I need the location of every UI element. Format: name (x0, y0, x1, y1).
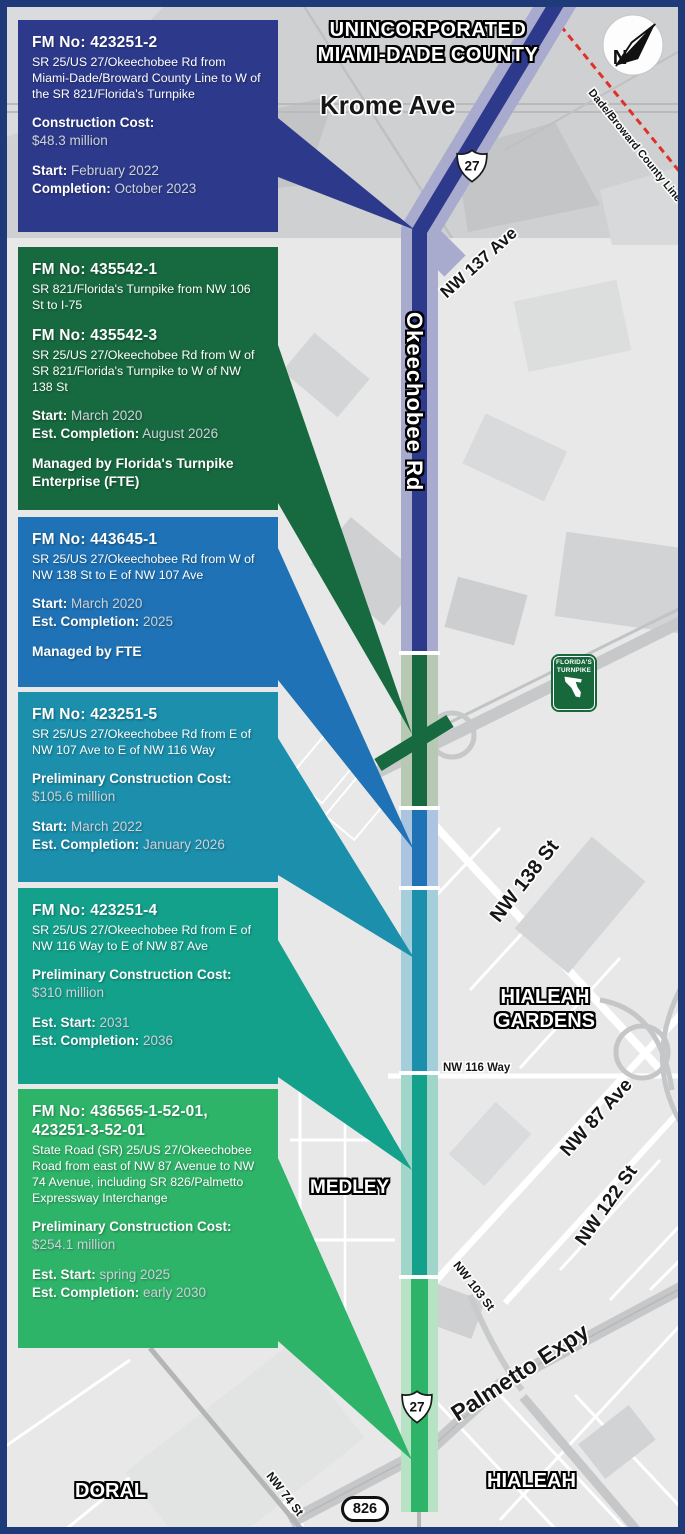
svg-text:27: 27 (409, 1400, 424, 1415)
segment-423251-4 (412, 1075, 427, 1275)
start-label: Start: (32, 163, 67, 178)
project-map: UNINCORPORATED MIAMI-DADE COUNTY Krome A… (0, 0, 685, 1534)
fm-number-2: FM No: 435542-3 (32, 326, 264, 345)
florida-silhouette-icon (561, 674, 587, 700)
start-value: spring 2025 (100, 1267, 171, 1282)
start-value: March 2020 (71, 408, 142, 423)
cost-label: Preliminary Construction Cost: (32, 770, 264, 788)
project-description: State Road (SR) 25/US 27/Okeechobee Road… (32, 1142, 264, 1206)
start-label: Start: (32, 408, 67, 423)
start-value: February 2022 (71, 163, 159, 178)
project-description: SR 25/US 27/Okeechobee Rd from E of NW 1… (32, 922, 264, 954)
us-27-shield-north: 27 (455, 149, 489, 183)
project-description-2: SR 25/US 27/Okeechobee Rd from W of SR 8… (32, 347, 264, 395)
street-label-krome-ave: Krome Ave (320, 90, 455, 121)
completion-value: October 2023 (115, 181, 197, 196)
project-description: SR 25/US 27/Okeechobee Rd from W of NW 1… (32, 551, 264, 583)
region-label-hialeah-gardens: HIALEAH GARDENS (460, 985, 630, 1033)
fm-number: FM No: 443645-1 (32, 530, 264, 549)
project-card-423251-5: FM No: 423251-5 SR 25/US 27/Okeechobee R… (18, 692, 278, 882)
completion-label: Completion: (32, 181, 111, 196)
start-value: March 2022 (71, 819, 142, 834)
completion-value: 2025 (143, 614, 173, 629)
us-27-shield-south: 27 (400, 1390, 434, 1424)
project-description: SR 25/US 27/Okeechobee Rd from Miami-Dad… (32, 54, 264, 102)
start-label: Start: (32, 596, 67, 611)
region-label-unincorporated: UNINCORPORATED MIAMI-DADE COUNTY (266, 18, 590, 68)
cost-label: Construction Cost: (32, 114, 264, 132)
svg-text:N: N (613, 46, 628, 69)
svg-text:27: 27 (464, 159, 479, 174)
completion-label: Est. Completion: (32, 614, 139, 629)
completion-label: Est. Completion: (32, 1285, 139, 1300)
fm-number: FM No: 423251-4 (32, 901, 264, 920)
project-card-423251-2: FM No: 423251-2 SR 25/US 27/Okeechobee R… (18, 20, 278, 232)
cost-value: $310 million (32, 984, 264, 1002)
street-label-nw-116-way: NW 116 Way (443, 1062, 510, 1074)
region-label-medley: MEDLEY (310, 1177, 389, 1199)
cost-value: $105.6 million (32, 788, 264, 806)
project-card-423251-4: FM No: 423251-4 SR 25/US 27/Okeechobee R… (18, 888, 278, 1084)
segment-443645-1 (412, 810, 427, 886)
completion-label: Est. Completion: (32, 1033, 139, 1048)
completion-value: 2036 (143, 1033, 173, 1048)
north-arrow: N (601, 13, 665, 77)
completion-label: Est. Completion: (32, 426, 139, 441)
project-card-443645-1: FM No: 443645-1 SR 25/US 27/Okeechobee R… (18, 517, 278, 687)
cost-label: Preliminary Construction Cost: (32, 1218, 264, 1236)
start-label: Start: (32, 819, 67, 834)
project-card-435542: FM No: 435542-1 SR 821/Florida's Turnpik… (18, 247, 278, 510)
completion-label: Est. Completion: (32, 837, 139, 852)
start-value: March 2020 (71, 596, 142, 611)
managed-by-note: Managed by Florida's Turnpike Enterprise… (32, 455, 264, 491)
completion-value: January 2026 (143, 837, 225, 852)
project-description: SR 25/US 27/Okeechobee Rd from E of NW 1… (32, 726, 264, 758)
project-card-436565: FM No: 436565-1-52-01, 423251-3-52-01 St… (18, 1089, 278, 1348)
segment-423251-5 (412, 890, 427, 1071)
start-label: Est. Start: (32, 1267, 96, 1282)
completion-value: early 2030 (143, 1285, 206, 1300)
region-label-hialeah: HIALEAH (487, 1470, 576, 1493)
start-value: 2031 (100, 1015, 130, 1030)
sr-826-shield: 826 (341, 1496, 389, 1522)
cost-value: $254.1 million (32, 1236, 264, 1254)
project-description: SR 821/Florida's Turnpike from NW 106 St… (32, 281, 264, 313)
cost-value: $48.3 million (32, 132, 264, 150)
completion-value: August 2026 (142, 426, 218, 441)
fm-number: FM No: 423251-5 (32, 705, 264, 724)
managed-by-note: Managed by FTE (32, 643, 264, 661)
street-label-okeechobee-rd: Okeechobee Rd (401, 312, 427, 491)
florida-turnpike-shield: FLORIDA'S TURNPIKE (551, 654, 597, 712)
start-label: Est. Start: (32, 1015, 96, 1030)
fm-number: FM No: 436565-1-52-01, 423251-3-52-01 (32, 1102, 264, 1140)
cost-label: Preliminary Construction Cost: (32, 966, 264, 984)
fm-number: FM No: 423251-2 (32, 33, 264, 52)
fm-number: FM No: 435542-1 (32, 260, 264, 279)
region-label-doral: DORAL (75, 1480, 146, 1503)
